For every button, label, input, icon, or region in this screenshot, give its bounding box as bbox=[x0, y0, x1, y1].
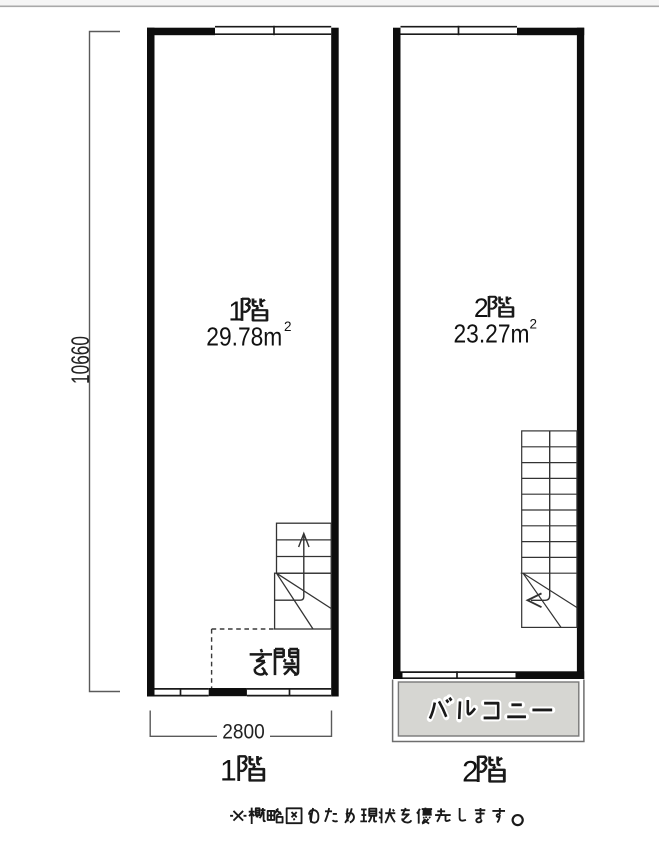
svg-text:29.78m: 29.78m bbox=[206, 322, 282, 352]
svg-text:2: 2 bbox=[462, 756, 478, 789]
svg-text:2: 2 bbox=[284, 319, 292, 334]
svg-text:23.27m: 23.27m bbox=[454, 319, 530, 349]
svg-text:10660: 10660 bbox=[67, 336, 95, 384]
svg-text:2800: 2800 bbox=[222, 720, 265, 744]
svg-text:2: 2 bbox=[530, 317, 538, 332]
svg-text:1: 1 bbox=[220, 755, 237, 788]
